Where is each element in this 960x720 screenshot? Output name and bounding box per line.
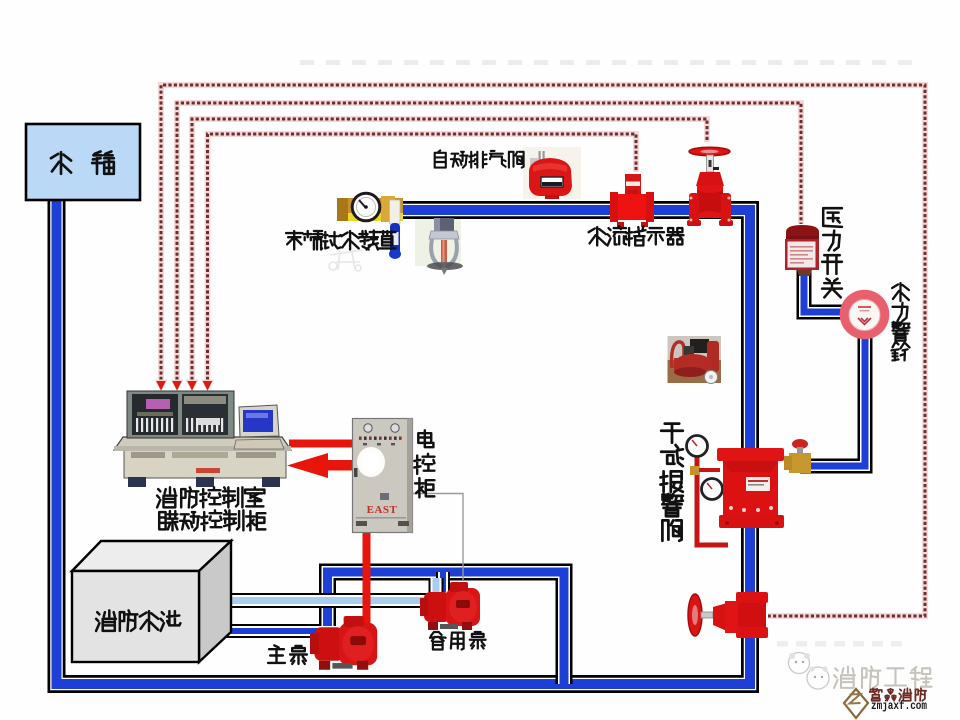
svg-text:EAST: EAST bbox=[367, 504, 398, 516]
svg-text:zmjaxf.com: zmjaxf.com bbox=[871, 699, 927, 713]
